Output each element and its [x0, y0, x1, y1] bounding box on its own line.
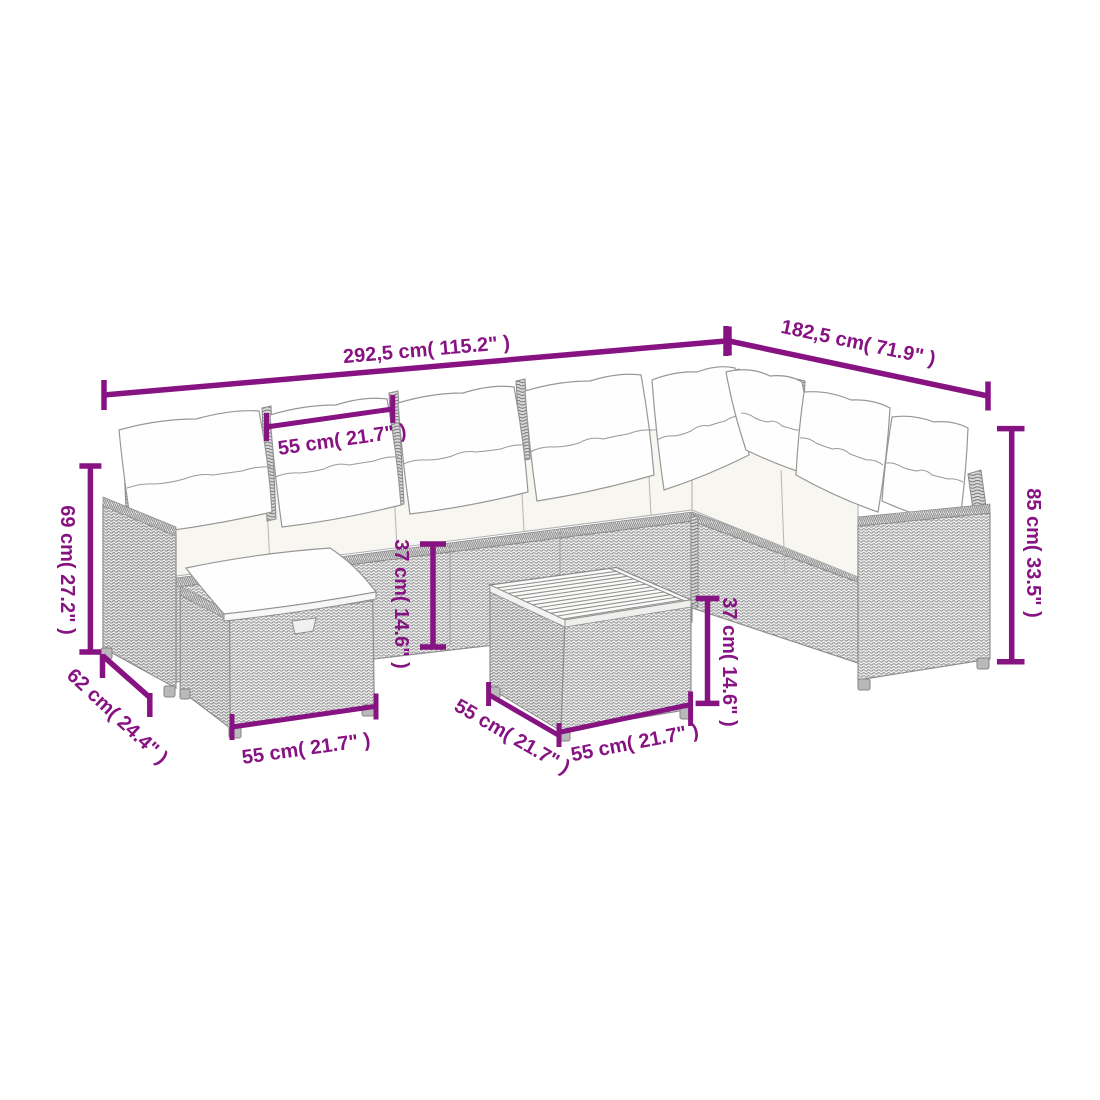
svg-text:37 cm( 14.6" ): 37 cm( 14.6" ) [718, 597, 740, 727]
svg-text:69 cm( 27.2" ): 69 cm( 27.2" ) [56, 505, 78, 635]
svg-text:37 cm( 14.6" ): 37 cm( 14.6" ) [390, 539, 412, 669]
svg-text:85 cm( 33.5" ): 85 cm( 33.5" ) [1022, 488, 1044, 618]
